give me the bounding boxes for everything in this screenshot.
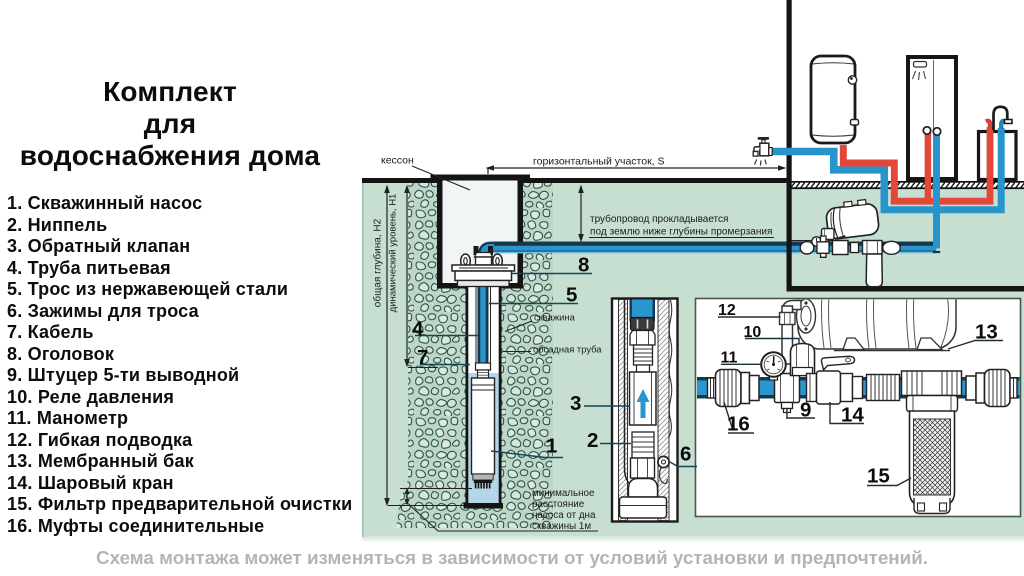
svg-text:горизонтальный участок, S: горизонтальный участок, S	[533, 156, 665, 168]
svg-text:16: 16	[727, 413, 750, 436]
svg-text:5: 5	[566, 284, 577, 307]
svg-text:15: 15	[867, 465, 890, 488]
svg-text:1: 1	[546, 435, 557, 458]
svg-text:под землю ниже глубины промерз: под землю ниже глубины промерзания	[590, 226, 773, 238]
svg-text:2: 2	[587, 429, 598, 452]
svg-text:8: 8	[578, 254, 589, 277]
svg-text:7: 7	[417, 346, 428, 369]
svg-text:14: 14	[841, 404, 864, 427]
svg-text:расстояние: расстояние	[532, 499, 585, 510]
svg-text:11: 11	[721, 350, 738, 367]
svg-text:4: 4	[412, 318, 424, 341]
svg-text:9: 9	[800, 399, 811, 422]
svg-text:скважины 1м: скважины 1м	[532, 521, 591, 532]
svg-text:насоса от дна: насоса от дна	[532, 510, 596, 521]
svg-text:динамический уровень, Н1: динамический уровень, Н1	[388, 194, 399, 313]
svg-text:кессон: кессон	[381, 155, 414, 167]
svg-text:10: 10	[744, 324, 762, 341]
svg-text:минимальное: минимальное	[532, 488, 595, 499]
svg-text:обсадная труба: обсадная труба	[533, 344, 602, 355]
svg-text:общая глубина, Н2: общая глубина, Н2	[372, 218, 384, 307]
svg-text:13: 13	[975, 321, 998, 344]
svg-text:12: 12	[718, 302, 736, 319]
svg-text:трубопровод прокладывается: трубопровод прокладывается	[590, 213, 728, 225]
svg-text:6: 6	[680, 443, 691, 466]
svg-text:скважина: скважина	[534, 312, 576, 323]
svg-text:3: 3	[570, 392, 581, 415]
